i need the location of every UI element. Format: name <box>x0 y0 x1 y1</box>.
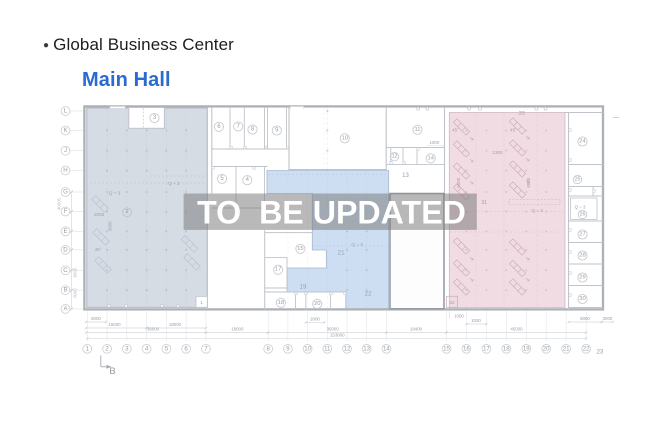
svg-text:15: 15 <box>443 345 450 352</box>
svg-text:1000: 1000 <box>454 313 464 318</box>
svg-text:6: 6 <box>184 345 188 352</box>
svg-text:2000: 2000 <box>310 316 320 321</box>
svg-text:21: 21 <box>338 249 345 256</box>
svg-text:E: E <box>63 228 67 235</box>
svg-text:1000: 1000 <box>471 318 481 323</box>
svg-text:B: B <box>109 366 115 377</box>
svg-text:27: 27 <box>579 232 585 238</box>
svg-text:J: J <box>64 147 67 154</box>
svg-text:3000: 3000 <box>603 316 613 321</box>
svg-text:F: F <box>64 208 68 215</box>
svg-text:23: 23 <box>519 111 525 117</box>
svg-text:14: 14 <box>383 345 390 352</box>
svg-text:11: 11 <box>324 345 331 352</box>
svg-text:25: 25 <box>575 177 581 183</box>
svg-text:18: 18 <box>278 300 284 306</box>
svg-text:3: 3 <box>125 345 129 352</box>
svg-text:22: 22 <box>583 345 590 352</box>
svg-text:1: 1 <box>200 300 203 306</box>
svg-text:B: B <box>63 287 67 294</box>
svg-text:19: 19 <box>300 284 307 290</box>
svg-text:H: H <box>63 167 67 174</box>
svg-text:9: 9 <box>275 128 279 134</box>
svg-text:19: 19 <box>523 345 530 352</box>
svg-text:6000: 6000 <box>73 288 78 298</box>
svg-text:6000: 6000 <box>456 177 461 187</box>
svg-text:9: 9 <box>286 345 290 352</box>
svg-text:23: 23 <box>596 349 603 356</box>
svg-text:4: 4 <box>145 345 149 352</box>
svg-text:A: A <box>63 305 68 312</box>
svg-text:G: G <box>63 189 68 196</box>
svg-text:1000: 1000 <box>430 140 440 145</box>
svg-text:TO BE UPDATED: TO BE UPDATED <box>197 195 466 231</box>
svg-text:Q = 3: Q = 3 <box>351 242 363 247</box>
svg-text:6000: 6000 <box>526 177 531 187</box>
svg-text:12: 12 <box>344 345 351 352</box>
svg-text:Q = 3: Q = 3 <box>575 204 586 209</box>
svg-text:13: 13 <box>402 173 409 179</box>
svg-text:5: 5 <box>165 345 169 352</box>
svg-text:2: 2 <box>105 345 109 352</box>
svg-text:45°: 45° <box>452 128 459 133</box>
svg-text:4: 4 <box>246 177 250 183</box>
svg-text:18000: 18000 <box>231 326 244 331</box>
svg-text:18000: 18000 <box>169 322 182 327</box>
svg-text:45°: 45° <box>95 247 102 252</box>
svg-text:30: 30 <box>579 296 585 302</box>
svg-text:6000: 6000 <box>73 267 78 277</box>
svg-text:40000: 40000 <box>57 197 62 210</box>
svg-text:K: K <box>63 127 67 134</box>
svg-text:7: 7 <box>237 123 241 129</box>
svg-text:36000: 36000 <box>147 326 160 331</box>
svg-text:2000: 2000 <box>94 212 105 217</box>
svg-text:18: 18 <box>503 345 510 352</box>
svg-text:1: 1 <box>86 345 90 352</box>
svg-text:18400: 18400 <box>410 326 423 331</box>
svg-text:45°: 45° <box>510 128 517 133</box>
svg-text:14: 14 <box>427 155 434 161</box>
svg-text:21: 21 <box>563 345 570 352</box>
svg-text:153800: 153800 <box>330 333 345 338</box>
svg-text:6: 6 <box>217 124 221 130</box>
svg-text:11: 11 <box>414 127 420 133</box>
svg-text:17: 17 <box>483 345 490 352</box>
svg-text:45000: 45000 <box>510 326 523 331</box>
svg-text:16: 16 <box>463 345 470 352</box>
svg-text:22: 22 <box>365 291 372 298</box>
svg-text:31: 31 <box>481 200 487 206</box>
svg-text:24: 24 <box>579 139 586 145</box>
svg-text:6000: 6000 <box>107 221 112 231</box>
svg-text:C: C <box>63 267 68 274</box>
svg-text:20: 20 <box>543 345 550 352</box>
svg-text:15000: 15000 <box>108 322 121 327</box>
svg-text:28: 28 <box>579 253 585 259</box>
svg-text:8: 8 <box>267 345 271 352</box>
svg-text:Q + 3: Q + 3 <box>109 190 121 195</box>
svg-text:36000: 36000 <box>327 326 340 331</box>
svg-text:D: D <box>63 246 68 253</box>
svg-text:29: 29 <box>579 275 585 281</box>
svg-text:2: 2 <box>126 209 129 215</box>
svg-text:20: 20 <box>314 301 320 307</box>
svg-text:6000: 6000 <box>580 316 590 321</box>
svg-text:26: 26 <box>580 212 586 218</box>
svg-text:12: 12 <box>392 154 398 160</box>
svg-text:10: 10 <box>342 135 348 141</box>
svg-text:17: 17 <box>275 267 281 273</box>
svg-text:1300: 1300 <box>492 150 503 155</box>
svg-text:13: 13 <box>363 345 370 352</box>
svg-text:7: 7 <box>204 345 208 352</box>
svg-text:32: 32 <box>449 300 455 306</box>
svg-text:Q + 3: Q + 3 <box>168 181 180 186</box>
svg-text:8: 8 <box>251 127 255 133</box>
svg-text:6000: 6000 <box>91 316 101 321</box>
svg-text:15: 15 <box>297 246 303 252</box>
svg-text:L: L <box>64 108 68 115</box>
svg-text:5: 5 <box>220 176 224 182</box>
svg-text:Q = 3: Q = 3 <box>532 208 544 213</box>
svg-text:10: 10 <box>304 345 311 352</box>
